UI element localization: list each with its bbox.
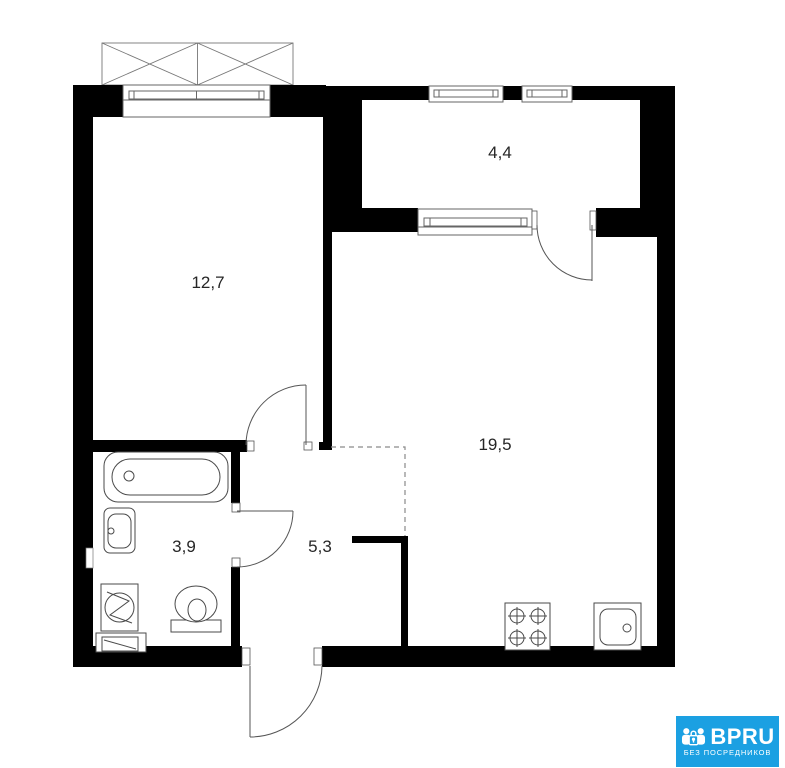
- window-balcony-b: [522, 86, 572, 102]
- washbasin-icon: [104, 508, 135, 553]
- floor-plan-drawing: 12,7 4,4 19,5 3,9 5,3: [0, 0, 785, 768]
- room-area-label: 12,7: [191, 273, 224, 292]
- wall-niche: [86, 548, 93, 568]
- window-balcony-bottom: [418, 209, 532, 235]
- washing-machine-icon: [101, 584, 138, 631]
- wall-column: [323, 86, 362, 232]
- kitchen-sink-icon: [594, 603, 641, 650]
- stove-icon: [505, 603, 550, 650]
- door-bathroom: [232, 503, 293, 567]
- wall-bathroom-right-lower: [231, 567, 240, 647]
- bathtub-icon: [104, 452, 228, 502]
- wall-bathroom-top: [93, 440, 247, 452]
- floor-plan-canvas: 12,7 4,4 19,5 3,9 5,3 BPRU БЕЗ ПОСРЕДНИК…: [0, 0, 785, 768]
- wall-balcony-arm-left: [362, 208, 418, 232]
- wall-right: [657, 237, 675, 667]
- hatched-balcony-outline: [102, 43, 293, 85]
- dashed-boundary: [331, 447, 405, 536]
- vent-box-icon: [96, 633, 146, 652]
- door-entry: [242, 648, 322, 737]
- window-room1: [123, 85, 270, 117]
- wall-left: [73, 85, 93, 667]
- wall-balcony-mullion: [503, 86, 522, 100]
- people-lock-icon: [680, 726, 707, 748]
- wall-kitchen-vertical: [401, 536, 408, 647]
- window-balcony-a: [429, 86, 503, 102]
- brand-name: BPRU: [710, 726, 774, 748]
- room-area-label: 19,5: [478, 435, 511, 454]
- walls: [73, 85, 675, 667]
- bathroom-fixtures: [96, 452, 228, 652]
- wall-interroom: [323, 232, 332, 450]
- door-balcony: [532, 211, 596, 281]
- wall-bathroom-right-upper: [231, 448, 240, 503]
- wall-top-a: [73, 85, 123, 117]
- toilet-icon: [171, 586, 221, 632]
- wall-balcony-arm-right: [596, 208, 657, 237]
- bpru-logo: BPRU БЕЗ ПОСРЕДНИКОВ: [676, 716, 779, 767]
- room-area-label: 4,4: [488, 143, 512, 162]
- brand-tagline: БЕЗ ПОСРЕДНИКОВ: [684, 749, 772, 757]
- kitchen-fixtures: [505, 603, 641, 650]
- wall-door-stub: [319, 442, 331, 450]
- wall-top-b: [270, 85, 326, 117]
- room-area-label: 3,9: [172, 537, 196, 556]
- wall-kitchen-horizontal: [352, 536, 408, 543]
- room-area-label: 5,3: [308, 537, 332, 556]
- door-room1: [246, 385, 312, 451]
